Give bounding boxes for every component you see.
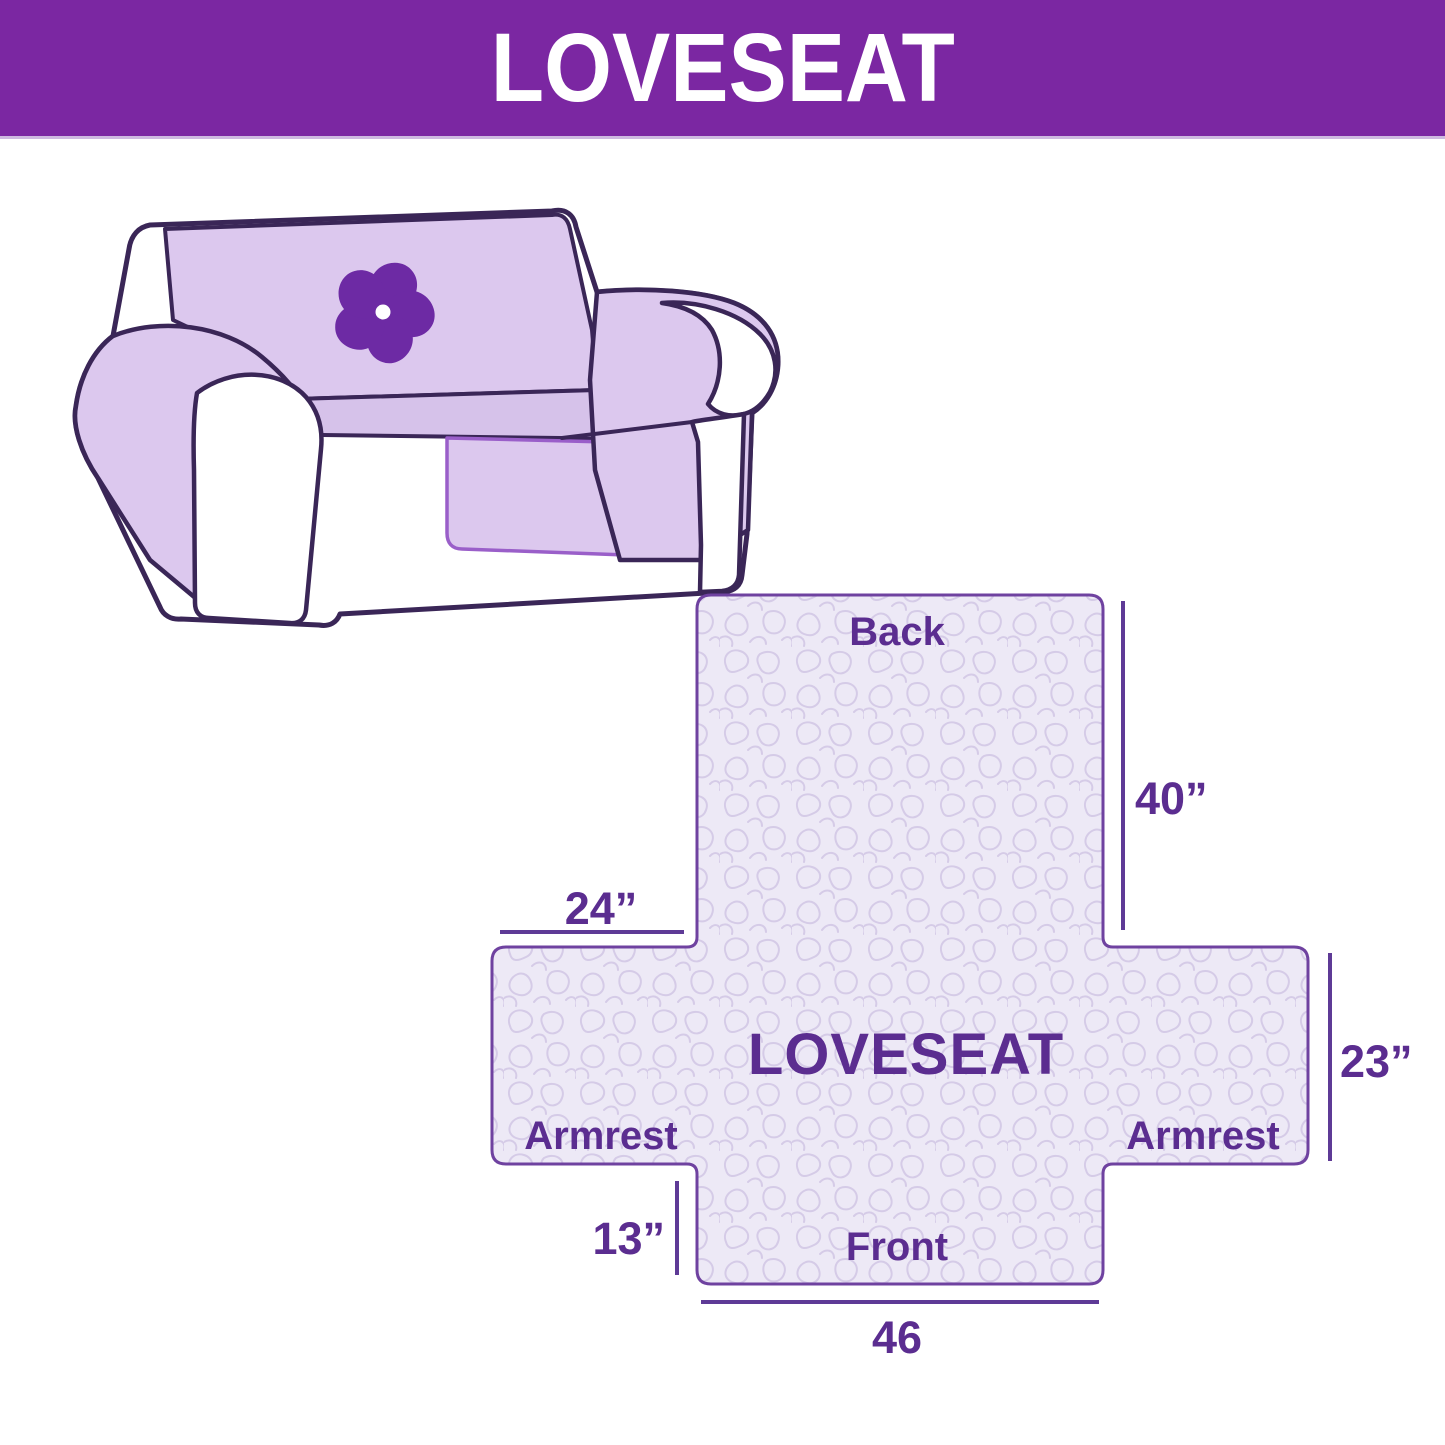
dim-armrest-side: 23” bbox=[1340, 1036, 1413, 1087]
front-label: Front bbox=[846, 1225, 948, 1269]
back-label: Back bbox=[849, 610, 945, 654]
dim-armrest-top: 24” bbox=[565, 883, 638, 934]
infographic-page: LOVESEAT bbox=[0, 0, 1445, 1445]
armrest-left-label: Armrest bbox=[524, 1114, 677, 1158]
dim-front-flap: 13” bbox=[592, 1213, 665, 1264]
left-arm-front bbox=[194, 375, 322, 623]
center-label: LOVESEAT bbox=[748, 1022, 1064, 1087]
sofa-illustration bbox=[75, 210, 778, 625]
dim-front-width: 46 bbox=[872, 1312, 922, 1363]
cover-outline-shape bbox=[492, 595, 1308, 1284]
dim-back-height: 40” bbox=[1135, 773, 1208, 824]
scene-graphics: Back 40” 24” LOVESEAT Armrest Armrest 23… bbox=[0, 0, 1445, 1445]
armrest-right-label: Armrest bbox=[1126, 1114, 1279, 1158]
right-base-white bbox=[692, 414, 744, 592]
cover-diagram: Back 40” 24” LOVESEAT Armrest Armrest 23… bbox=[492, 595, 1413, 1363]
